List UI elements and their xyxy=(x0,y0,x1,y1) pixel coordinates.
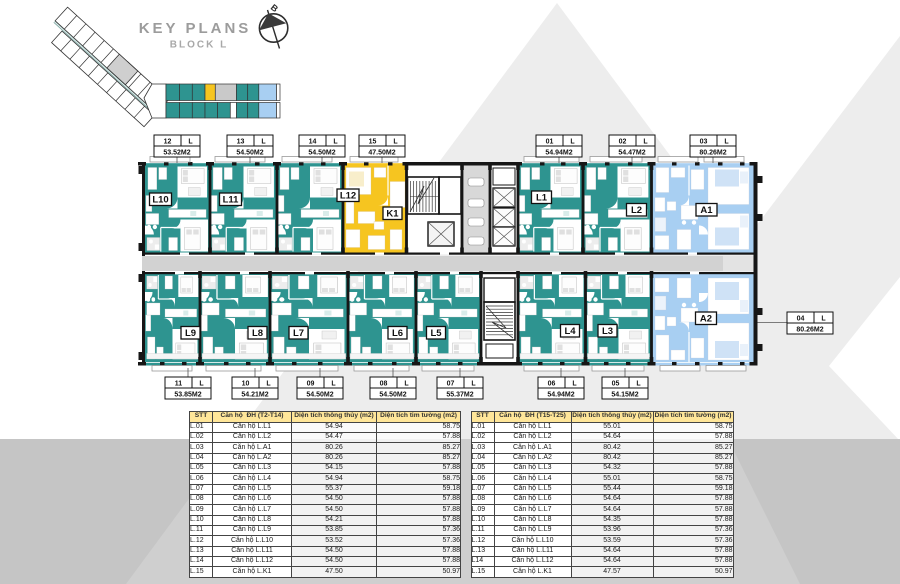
svg-text:15: 15 xyxy=(369,138,377,145)
svg-text:L6: L6 xyxy=(392,328,403,339)
svg-text:10: 10 xyxy=(242,380,250,387)
svg-text:L: L xyxy=(188,138,193,145)
svg-text:12: 12 xyxy=(164,138,172,145)
svg-text:L3: L3 xyxy=(602,326,613,337)
svg-text:47.50M2: 47.50M2 xyxy=(368,149,395,156)
svg-text:80.26M2: 80.26M2 xyxy=(699,149,726,156)
svg-text:09: 09 xyxy=(307,380,315,387)
svg-text:54.50M2: 54.50M2 xyxy=(308,149,335,156)
svg-text:54.94M2: 54.94M2 xyxy=(547,391,574,398)
svg-text:07: 07 xyxy=(447,380,455,387)
svg-text:L: L xyxy=(331,380,336,387)
svg-text:13: 13 xyxy=(237,138,245,145)
svg-text:L11: L11 xyxy=(223,195,240,206)
svg-text:L10: L10 xyxy=(152,195,168,206)
svg-text:L: L xyxy=(724,138,729,145)
svg-text:L: L xyxy=(572,380,577,387)
svg-text:L: L xyxy=(393,138,398,145)
svg-text:L9: L9 xyxy=(185,328,196,339)
svg-text:53.52M2: 53.52M2 xyxy=(163,149,190,156)
svg-text:BLOCK L: BLOCK L xyxy=(170,40,228,51)
svg-text:L: L xyxy=(471,380,476,387)
svg-text:05: 05 xyxy=(612,380,620,387)
svg-text:04: 04 xyxy=(797,315,805,322)
svg-text:53.85M2: 53.85M2 xyxy=(174,391,201,398)
svg-text:80.26M2: 80.26M2 xyxy=(796,326,823,333)
svg-text:A1: A1 xyxy=(700,205,713,216)
svg-text:54.50M2: 54.50M2 xyxy=(236,149,263,156)
svg-text:54.47M2: 54.47M2 xyxy=(618,149,645,156)
svg-text:L4: L4 xyxy=(564,326,576,337)
svg-text:55.37M2: 55.37M2 xyxy=(446,391,473,398)
svg-text:L: L xyxy=(261,138,266,145)
svg-text:L5: L5 xyxy=(430,328,442,339)
svg-text:54.15M2: 54.15M2 xyxy=(611,391,638,398)
svg-text:L12: L12 xyxy=(340,191,356,202)
svg-text:L: L xyxy=(636,380,641,387)
svg-text:L: L xyxy=(821,315,826,322)
svg-text:L: L xyxy=(643,138,648,145)
svg-text:L: L xyxy=(266,380,271,387)
svg-text:54.50M2: 54.50M2 xyxy=(306,391,333,398)
svg-text:08: 08 xyxy=(380,380,388,387)
svg-text:L: L xyxy=(333,138,338,145)
svg-text:L7: L7 xyxy=(293,328,304,339)
svg-text:06: 06 xyxy=(548,380,556,387)
svg-text:54.50M2: 54.50M2 xyxy=(379,391,406,398)
svg-text:L1: L1 xyxy=(536,193,548,204)
svg-text:11: 11 xyxy=(175,380,183,387)
svg-text:KEY PLANS: KEY PLANS xyxy=(139,20,252,37)
svg-text:L2: L2 xyxy=(631,205,642,216)
svg-text:14: 14 xyxy=(309,138,317,145)
svg-text:L: L xyxy=(199,380,204,387)
svg-text:L: L xyxy=(404,380,409,387)
svg-text:L8: L8 xyxy=(252,328,263,339)
svg-text:01: 01 xyxy=(546,138,554,145)
svg-text:02: 02 xyxy=(619,138,627,145)
svg-text:K1: K1 xyxy=(386,209,399,220)
svg-text:L: L xyxy=(570,138,575,145)
svg-text:54.21M2: 54.21M2 xyxy=(241,391,268,398)
svg-text:A2: A2 xyxy=(700,314,712,325)
svg-text:03: 03 xyxy=(700,138,708,145)
svg-text:54.94M2: 54.94M2 xyxy=(545,149,572,156)
